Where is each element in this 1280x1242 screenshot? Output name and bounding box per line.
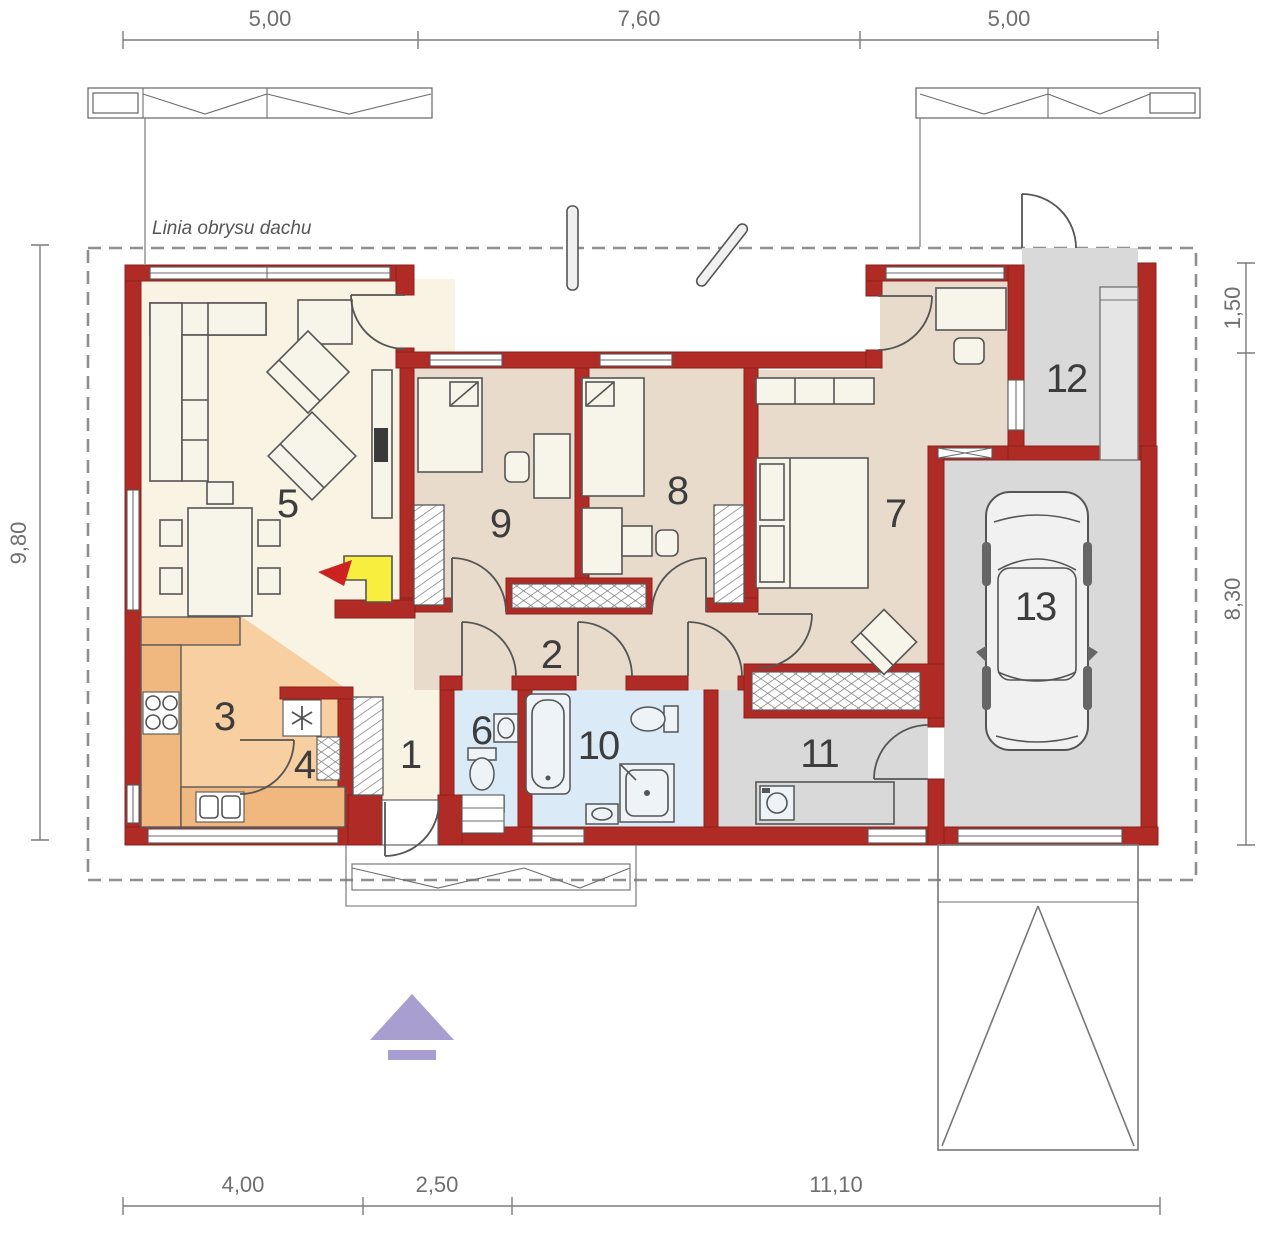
room-number-5: 5 xyxy=(277,482,298,526)
tv-unit xyxy=(372,370,392,518)
window-living-north xyxy=(150,267,390,279)
dimension-top: 5,00 7,60 5,00 xyxy=(123,6,1158,49)
floor-plan-page: 5,00 7,60 5,00 4,00 2,50 11,10 9,80 1,50… xyxy=(0,0,1280,1242)
cabinet-pantry xyxy=(317,737,340,780)
dimension-bottom: 4,00 2,50 11,10 xyxy=(123,1172,1160,1215)
dim-top-2: 7,60 xyxy=(618,6,661,31)
dim-left-1: 9,80 xyxy=(6,522,31,565)
floor-plan-svg: 5,00 7,60 5,00 4,00 2,50 11,10 9,80 1,50… xyxy=(0,0,1280,1242)
driveway xyxy=(938,845,1138,1150)
shower-icon xyxy=(620,764,674,822)
toilet-bath-icon xyxy=(631,706,678,732)
door-covered-entry xyxy=(1022,194,1076,248)
room-number-13: 13 xyxy=(1015,585,1056,629)
window-kitchen-west xyxy=(127,785,139,823)
bed-master xyxy=(756,458,868,588)
tv-icon xyxy=(374,428,388,462)
roof-outline-label: Linia obrysu dachu xyxy=(152,218,312,239)
pergola-right xyxy=(916,88,1200,247)
wardrobe-bedroom8 xyxy=(714,505,744,603)
garage-gate xyxy=(958,829,1122,843)
window-utility-south xyxy=(868,829,926,843)
bed-bedroom8 xyxy=(582,378,644,496)
dresser-bedroom8 xyxy=(582,508,622,574)
wardrobe-bedroom9 xyxy=(414,505,444,605)
window-kitchen-south xyxy=(148,829,338,843)
sofa-master xyxy=(756,378,874,404)
window-bedroom9 xyxy=(430,354,502,366)
sink-wc-icon xyxy=(494,714,518,742)
sink-icon xyxy=(196,792,244,822)
dim-bottom-2: 2,50 xyxy=(416,1172,459,1197)
bathtub-icon xyxy=(526,694,570,794)
door-entry12-to-house xyxy=(1008,380,1024,430)
window-master-alcove xyxy=(886,267,1004,279)
desk-bedroom8 xyxy=(622,526,678,556)
floor-corridor xyxy=(414,612,758,690)
dim-top-3: 5,00 xyxy=(988,6,1031,31)
toilet-wc-icon xyxy=(468,748,496,790)
room-number-8: 8 xyxy=(667,469,688,513)
cabinet-entry12 xyxy=(1100,287,1138,460)
dim-right-2: 8,30 xyxy=(1220,578,1245,621)
room-number-4: 4 xyxy=(294,743,316,787)
room-number-2: 2 xyxy=(541,633,562,677)
stove-icon xyxy=(143,692,179,734)
window-living-west xyxy=(127,490,139,610)
fridge-icon xyxy=(283,700,321,736)
dimension-left: 9,80 xyxy=(6,245,49,840)
window-bathroom-south xyxy=(532,829,584,843)
room-number-10: 10 xyxy=(578,724,619,768)
wardrobe-corridor-niche xyxy=(506,578,652,614)
wardrobe-hall xyxy=(353,697,383,795)
bed-bedroom9 xyxy=(418,378,482,472)
entrance-arrow-icon xyxy=(370,994,454,1060)
dimension-right: 1,50 8,30 xyxy=(1220,263,1255,845)
dim-right-1: 1,50 xyxy=(1220,287,1245,330)
room-number-7: 7 xyxy=(885,492,906,536)
entrance-door-opening xyxy=(382,800,438,845)
room-number-6: 6 xyxy=(471,709,492,753)
wardrobe-master-bedroom xyxy=(744,664,944,718)
room-number-11: 11 xyxy=(800,732,838,776)
sink-bath-icon xyxy=(586,804,618,824)
room-number-1: 1 xyxy=(400,733,421,777)
room-number-3: 3 xyxy=(214,695,235,739)
dim-bottom-3: 11,10 xyxy=(809,1172,862,1197)
room-number-9: 9 xyxy=(490,502,511,546)
window-garage-internal xyxy=(938,448,992,458)
room-number-12: 12 xyxy=(1046,357,1087,401)
window-bedroom8 xyxy=(600,354,672,366)
dim-bottom-1: 4,00 xyxy=(222,1172,265,1197)
dim-top-1: 5,00 xyxy=(249,6,292,31)
porch-steps xyxy=(462,795,504,833)
